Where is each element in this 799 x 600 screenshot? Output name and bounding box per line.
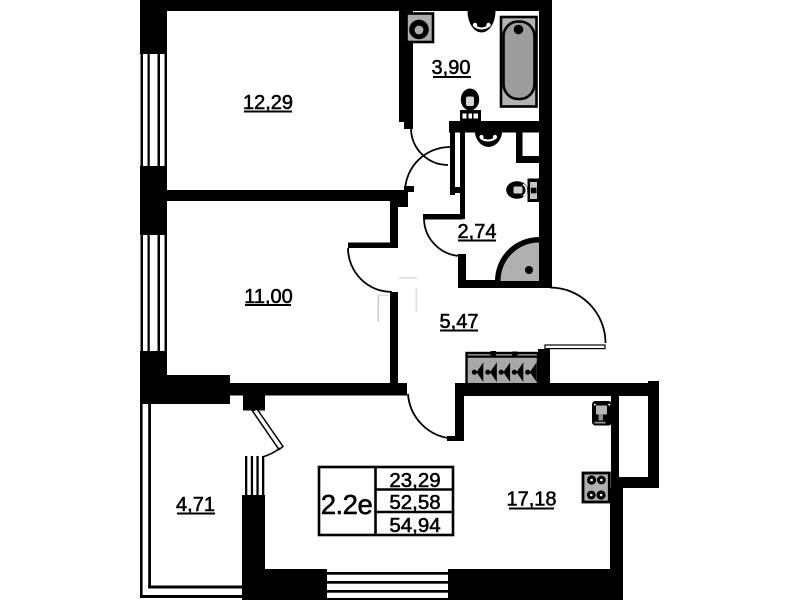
svg-text:23,29: 23,29 xyxy=(389,469,440,492)
svg-text:3,90: 3,90 xyxy=(432,57,471,79)
svg-text:2.2е: 2.2е xyxy=(321,489,373,520)
svg-text:54,94: 54,94 xyxy=(389,514,440,537)
svg-text:17,18: 17,18 xyxy=(506,489,556,511)
svg-text:52,58: 52,58 xyxy=(389,491,440,514)
